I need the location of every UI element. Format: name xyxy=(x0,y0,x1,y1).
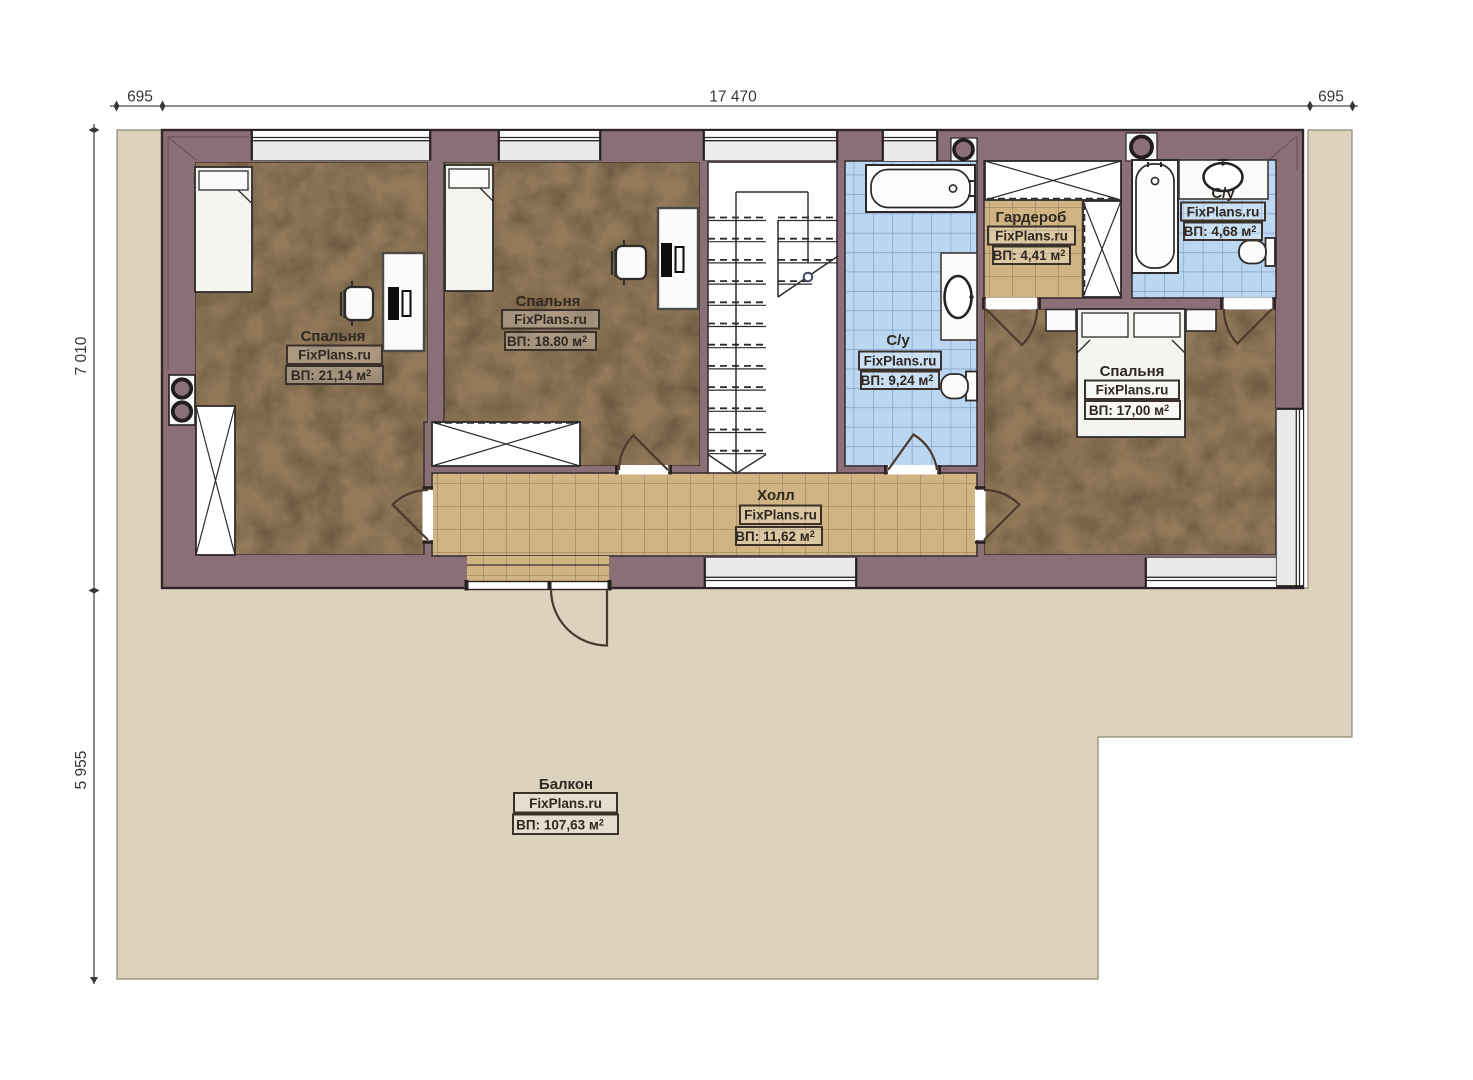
svg-text:ВП: 4,68 м2: ВП: 4,68 м2 xyxy=(1184,224,1257,239)
svg-text:Спальня: Спальня xyxy=(301,328,366,345)
svg-text:FixPlans.ru: FixPlans.ru xyxy=(1096,383,1169,398)
svg-text:Балкон: Балкон xyxy=(539,776,593,793)
svg-text:ВП: 11,62 м2: ВП: 11,62 м2 xyxy=(735,529,815,544)
svg-text:FixPlans.ru: FixPlans.ru xyxy=(995,229,1068,244)
svg-text:5 955: 5 955 xyxy=(73,751,90,790)
svg-text:ВП: 107,63 м2: ВП: 107,63 м2 xyxy=(516,818,604,833)
svg-text:Холл: Холл xyxy=(757,487,795,504)
svg-text:С/у: С/у xyxy=(1211,185,1235,202)
svg-text:695: 695 xyxy=(127,89,153,106)
svg-text:ВП: 9,24 м2: ВП: 9,24 м2 xyxy=(861,373,934,388)
svg-text:Спальня: Спальня xyxy=(1100,363,1165,380)
svg-text:695: 695 xyxy=(1318,89,1344,106)
svg-text:Гардероб: Гардероб xyxy=(996,209,1067,226)
svg-text:FixPlans.ru: FixPlans.ru xyxy=(744,508,817,523)
svg-text:FixPlans.ru: FixPlans.ru xyxy=(1187,205,1260,220)
svg-text:Спальня: Спальня xyxy=(516,293,581,310)
svg-text:FixPlans.ru: FixPlans.ru xyxy=(529,796,602,811)
svg-text:ВП: 18.80 м2: ВП: 18.80 м2 xyxy=(507,334,587,349)
svg-text:FixPlans.ru: FixPlans.ru xyxy=(864,354,937,369)
svg-text:7 010: 7 010 xyxy=(73,336,90,375)
svg-text:ВП: 17,00 м2: ВП: 17,00 м2 xyxy=(1089,403,1169,418)
svg-text:FixPlans.ru: FixPlans.ru xyxy=(298,348,371,363)
svg-text:ВП: 4,41 м2: ВП: 4,41 м2 xyxy=(993,248,1066,263)
svg-text:С/у: С/у xyxy=(886,332,910,349)
svg-text:17 470: 17 470 xyxy=(709,89,757,106)
svg-text:FixPlans.ru: FixPlans.ru xyxy=(514,312,587,327)
svg-text:ВП: 21,14 м2: ВП: 21,14 м2 xyxy=(291,368,371,383)
